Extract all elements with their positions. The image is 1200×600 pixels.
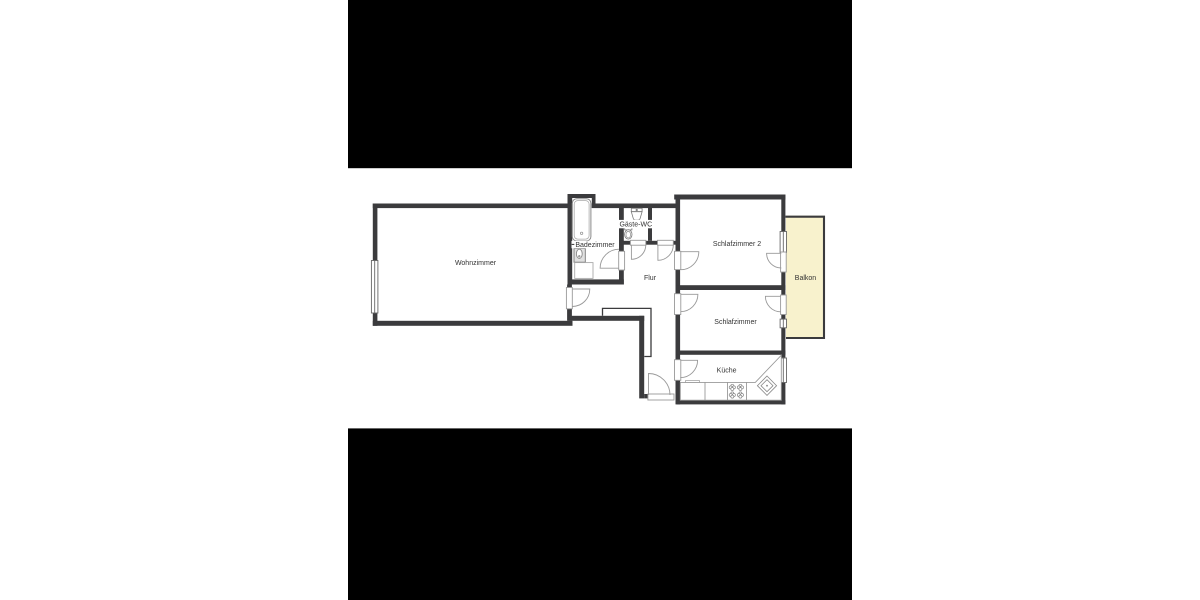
svg-text:Gäste-WC: Gäste-WC — [619, 222, 652, 229]
svg-text:Schlafzimmer 2: Schlafzimmer 2 — [713, 241, 761, 248]
svg-text:Balkon: Balkon — [795, 275, 817, 282]
svg-text:Wohnzimmer: Wohnzimmer — [455, 260, 497, 267]
svg-text:Schlafzimmer: Schlafzimmer — [714, 319, 757, 326]
svg-text:Flur: Flur — [644, 275, 657, 282]
svg-text:Badezimmer: Badezimmer — [575, 242, 615, 249]
svg-text:Küche: Küche — [717, 368, 737, 375]
